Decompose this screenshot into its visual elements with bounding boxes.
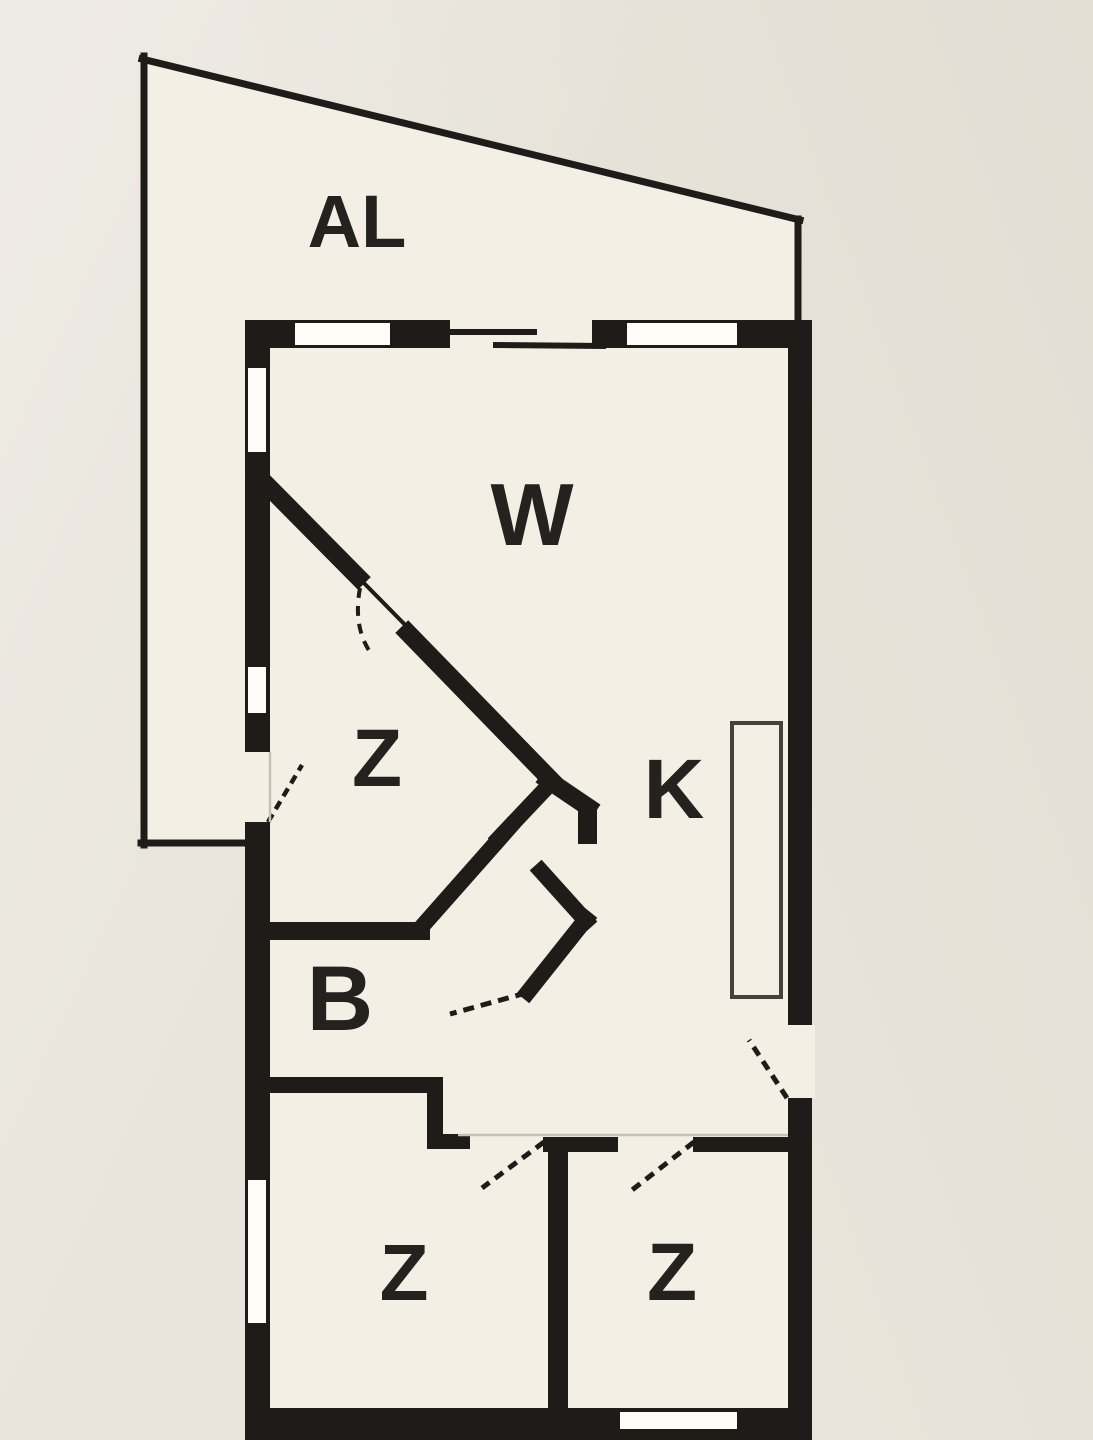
room-label-k: K (644, 742, 705, 836)
bottom-rooms-partition-wall (548, 1137, 568, 1410)
window-left-lower (248, 1180, 266, 1323)
window-top-left (295, 323, 390, 345)
bath-bottom-wall (245, 1077, 443, 1093)
entrance-door-opening (785, 1025, 815, 1098)
bath-top-wall (258, 922, 430, 940)
hall-corner-wall (427, 1077, 443, 1149)
room-label-z-bottom-left: Z (380, 1228, 429, 1317)
scanned-floor-plan-page: AL W Z K B Z Z (0, 0, 1093, 1440)
balcony-door-opening-left (242, 752, 273, 822)
room-label-z-bottom-right: Z (647, 1227, 697, 1318)
window-bottom (620, 1412, 737, 1429)
room-label-z-middle: Z (352, 713, 402, 804)
window-top-right (627, 323, 737, 345)
room-label-w: W (490, 465, 573, 564)
room-label-al: AL (308, 180, 407, 263)
floor-plan-drawing: AL W Z K B Z Z (0, 0, 1093, 1440)
sliding-door-leaf-inner (493, 345, 606, 346)
kitchen-counter (732, 723, 781, 997)
floor-areas (144, 58, 812, 1440)
window-left-upper (248, 368, 266, 452)
right-wall (788, 320, 812, 1440)
bottom-right-room-top-wall (693, 1137, 790, 1152)
window-left-middle (248, 667, 266, 713)
room-label-b: B (307, 948, 373, 1050)
